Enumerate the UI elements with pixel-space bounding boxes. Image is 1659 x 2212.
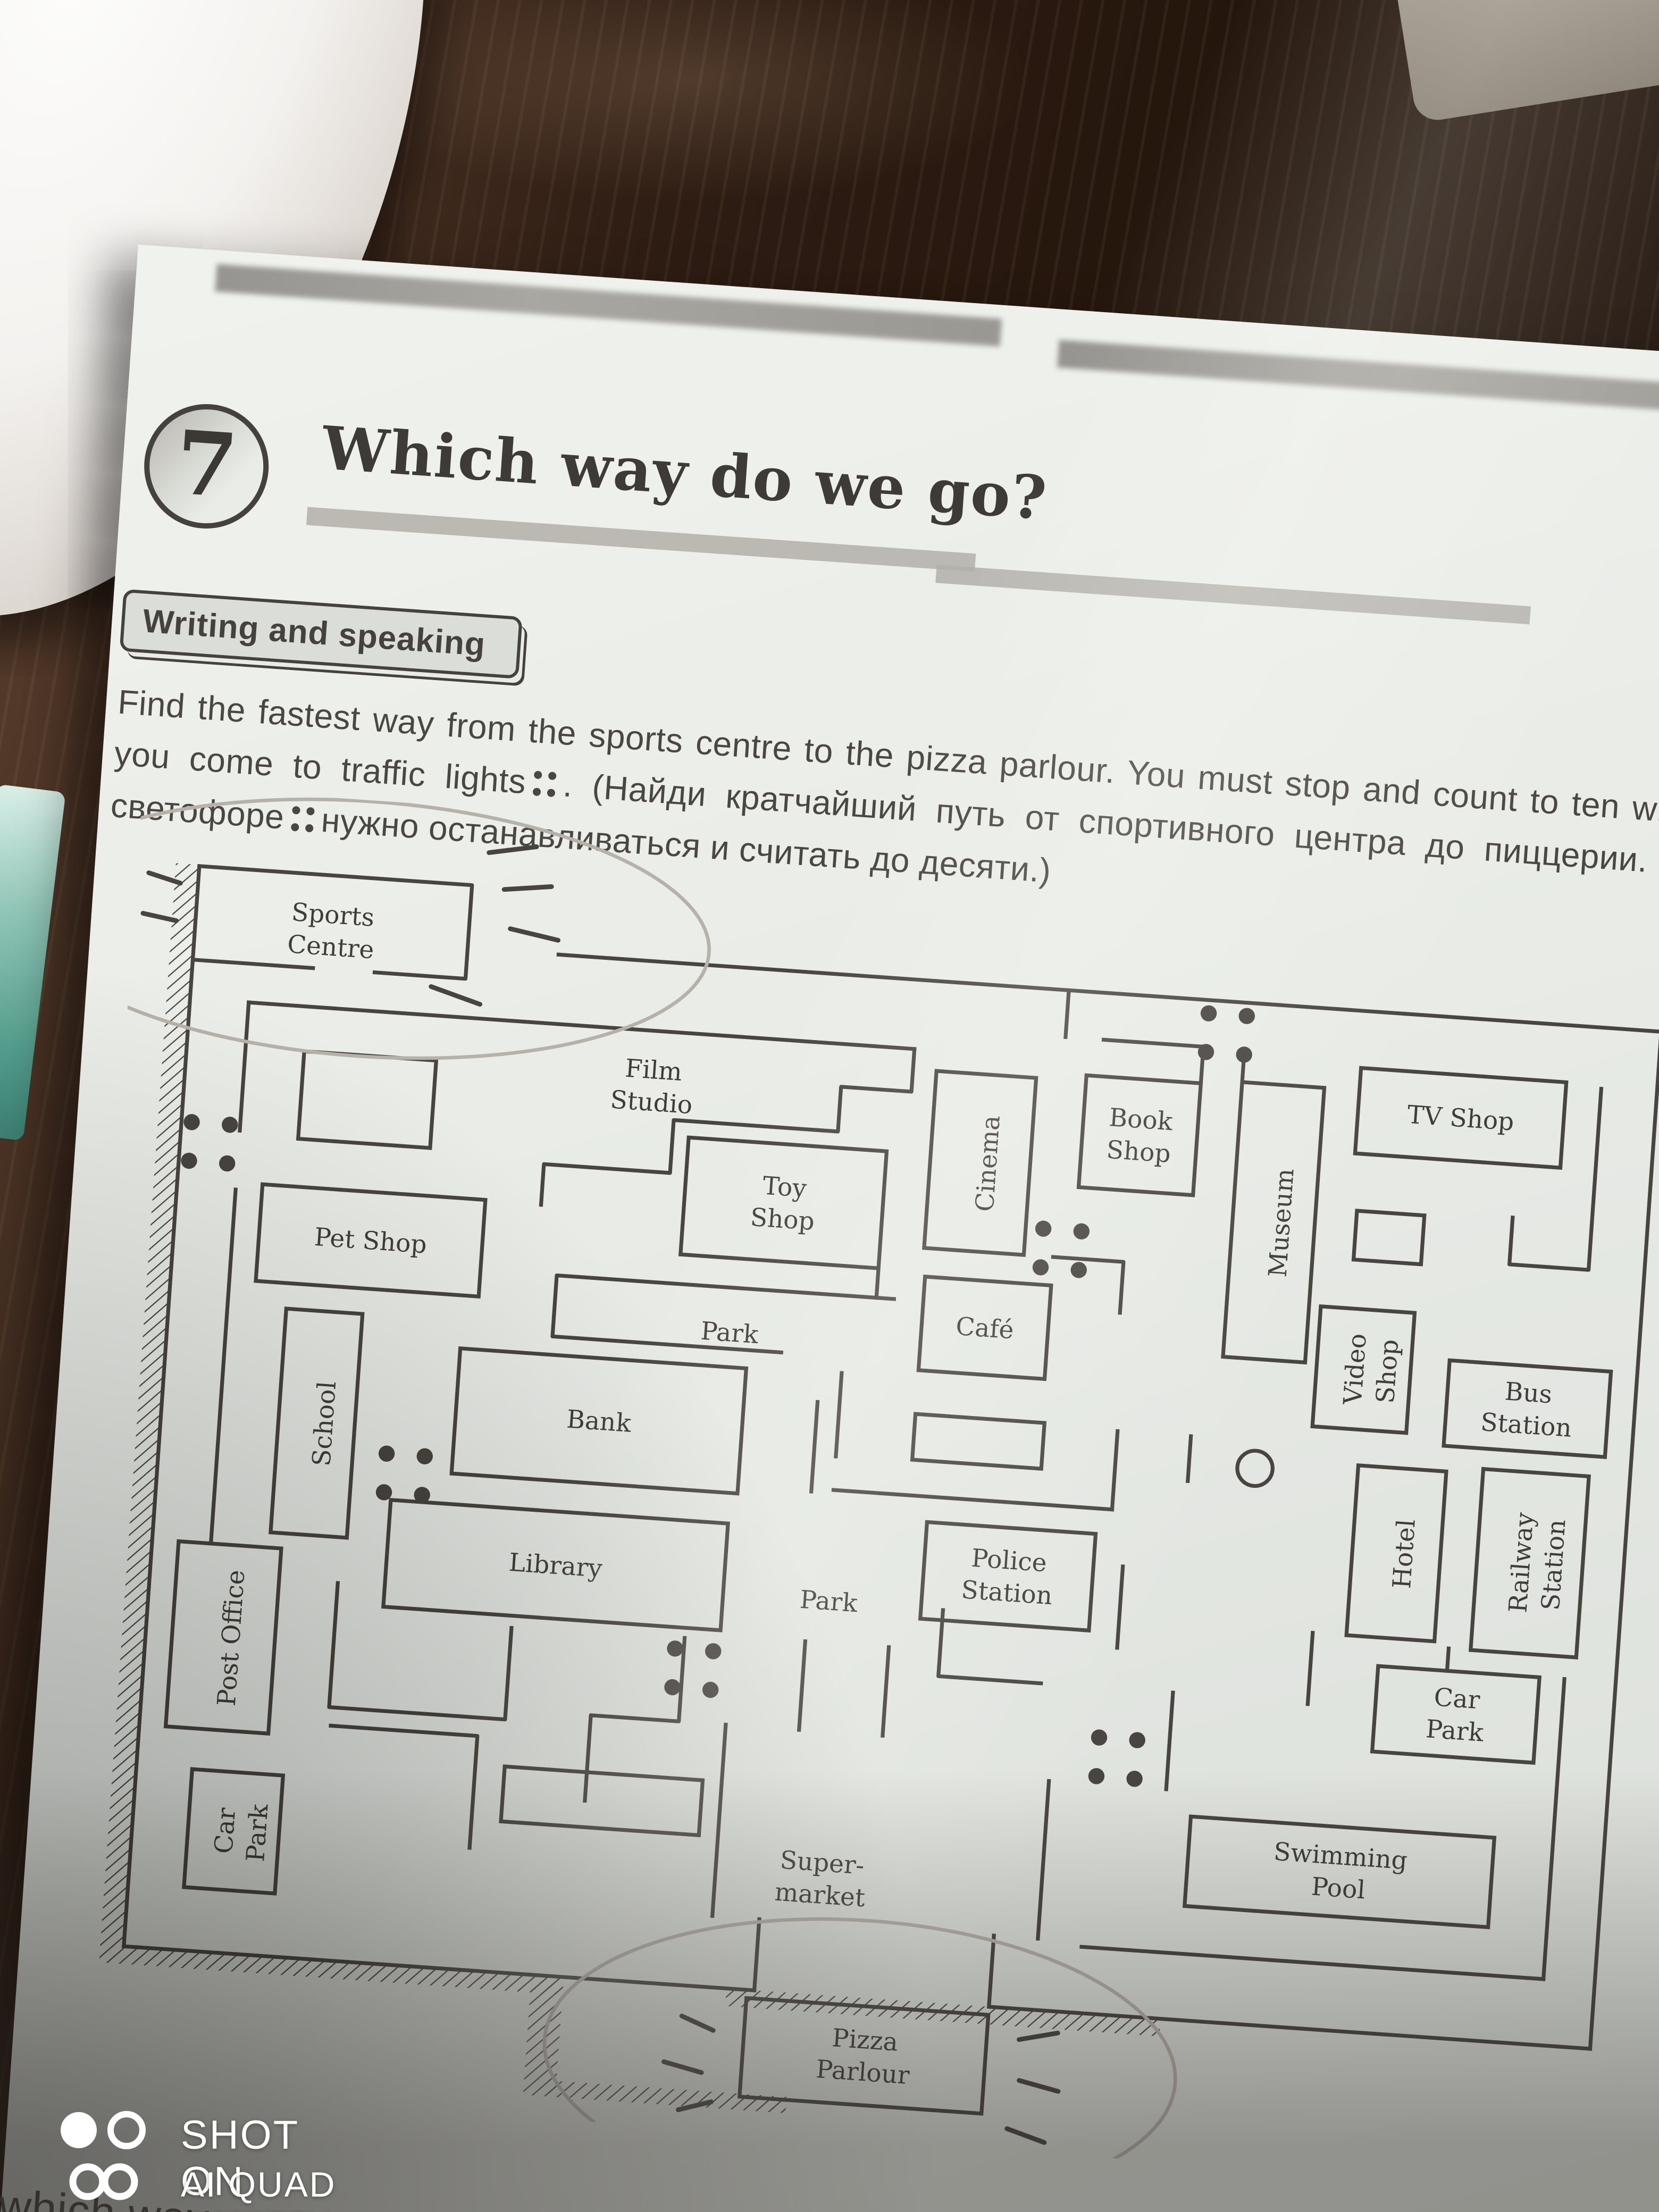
building-label-bus-station: BusStation (1480, 1376, 1575, 1443)
maze-wall (1038, 1781, 1049, 1938)
maze-wall (323, 1725, 477, 1848)
building-label-post-office: Post Office (212, 1569, 251, 1707)
traffic-light-dot (664, 1679, 681, 1696)
building-label-police-station: PoliceStation (960, 1543, 1055, 1611)
area-label-park-upper-text: Park (700, 1317, 760, 1350)
door-dash-mark (663, 2062, 702, 2072)
maze-wall (541, 1024, 915, 1230)
door-dash-mark (1006, 2129, 1045, 2142)
traffic-light-dot (183, 1113, 200, 1130)
building-police-station (920, 1522, 1096, 1630)
building-label-video-shop: VideoShop (1338, 1333, 1405, 1409)
watermark-line2: AI QUAD CAMERA (181, 2164, 340, 2212)
building-label-museum: Museum (1263, 1168, 1300, 1278)
area-label-park-lower-text: Park (799, 1585, 859, 1618)
traffic-light-icon (531, 768, 558, 801)
traffic-light-dot (666, 1640, 683, 1657)
traffic-light-dot (702, 1681, 719, 1698)
traffic-light-dot (1238, 1008, 1255, 1025)
maze-wall (755, 1919, 759, 1990)
building-label-bank-text: Bank (566, 1405, 632, 1438)
building-label-car-park-bottom-left-text: CarPark (208, 1801, 274, 1863)
traffic-light-dot (378, 1445, 395, 1462)
city-maze-svg: ToyShopCinemaBookShopMuseumTV ShopPet Sh… (52, 784, 1659, 2194)
redmi-ai-camera-logo (58, 2110, 165, 2211)
building-label-cafe: Café (955, 1312, 1015, 1345)
maze-wall (193, 960, 313, 968)
building-bus-station (1444, 1360, 1611, 1457)
traffic-light-dot (1088, 1767, 1105, 1784)
maze-wall (329, 1583, 514, 1720)
traffic-light-dot (1032, 1259, 1049, 1276)
building-label-book-shop-text: BookShop (1105, 1103, 1174, 1169)
maze-wall (1066, 990, 1069, 1037)
door-dash-mark (1019, 2081, 1059, 2092)
photo-scene: 7 Which way do we go? Writing and speaki… (0, 0, 1659, 2212)
maze-wall (1544, 1679, 1564, 1979)
building-label-toy-shop: ToyShop (749, 1170, 818, 1236)
roundabout-icon (1236, 1449, 1274, 1487)
traffic-light-dot (1129, 1731, 1146, 1748)
building-label-library: Library (508, 1548, 604, 1583)
building-label-school-text: School (307, 1380, 342, 1467)
maze-wall (1590, 1032, 1659, 2049)
building-swimming-pool (1185, 1816, 1495, 1927)
maze-wall (1308, 1633, 1312, 1704)
building-car-park-right (1372, 1666, 1540, 1763)
area-label-film-studio-text: FilmStudio (609, 1053, 696, 1120)
building-label-museum-text: Museum (1263, 1168, 1300, 1278)
building-label-bank: Bank (566, 1405, 632, 1438)
door-dash-mark (143, 914, 177, 921)
maze-wall (713, 1725, 726, 1916)
maze-wall (834, 1490, 1112, 1510)
door-dash-mark (504, 883, 551, 893)
building-small-square-b (1354, 1211, 1425, 1264)
unit-number-badge: 7 (140, 400, 273, 533)
traffic-light-dot (1235, 1046, 1252, 1063)
door-dash-mark (510, 929, 559, 941)
maze-wall (240, 1002, 249, 1130)
building-label-pizza-parlour-text: PizzaParlour (815, 2022, 913, 2090)
door-dash-mark (430, 986, 481, 1004)
traffic-light-dot (219, 1155, 236, 1172)
traffic-light-dot (1126, 1770, 1143, 1787)
maze-wall (211, 1189, 236, 1541)
building-label-cinema-text: Cinema (970, 1115, 1006, 1213)
maze-wall (1166, 1692, 1173, 1789)
door-dash-mark (1019, 2030, 1058, 2042)
building-label-railway-station-text: RailwayStation (1503, 1511, 1572, 1616)
building-label-tv-shop-text: TV Shop (1406, 1100, 1515, 1137)
maze-wall (1117, 1566, 1123, 1648)
building-label-post-office-text: Post Office (212, 1569, 251, 1707)
building-label-swimming-pool: SwimmingPool (1270, 1837, 1408, 1908)
maze-wall (876, 1268, 878, 1297)
textbook-page: 7 Which way do we go? Writing and speaki… (0, 245, 1659, 2212)
area-label-sports-centre: SportsCentre (287, 898, 378, 965)
maze-wall (799, 1641, 806, 1730)
building-label-car-park-right: CarPark (1425, 1682, 1487, 1748)
door-dash-mark (489, 843, 537, 856)
area-label-park-upper: Park (700, 1317, 760, 1350)
building-label-car-park-bottom-left: CarPark (208, 1801, 274, 1863)
building-label-school: School (307, 1380, 342, 1467)
area-label-supermarket: Super-market (774, 1845, 868, 1913)
building-label-book-shop: BookShop (1105, 1103, 1174, 1169)
traffic-light-dot (221, 1116, 238, 1133)
building-label-library-text: Library (508, 1548, 604, 1583)
building-small-square-a (298, 1051, 437, 1148)
building-label-police-station-text: PoliceStation (960, 1543, 1055, 1611)
building-small-rect-cafe (912, 1414, 1045, 1469)
building-label-pet-shop-text: Pet Shop (313, 1222, 428, 1260)
area-label-supermarket-text: Super-market (774, 1845, 868, 1913)
scan-smudge-band (1057, 340, 1659, 428)
area-label-film-studio: FilmStudio (609, 1053, 696, 1120)
maze-wall (558, 954, 1659, 1032)
building-label-car-park-right-text: CarPark (1425, 1682, 1487, 1748)
traffic-light-dot (1200, 1005, 1217, 1022)
area-label-sports-centre-text: SportsCentre (287, 898, 378, 965)
traffic-light-dot (1073, 1223, 1090, 1240)
maze-wall (811, 1402, 818, 1492)
traffic-light-dot (705, 1643, 722, 1660)
building-label-swimming-pool-text: SwimmingPool (1270, 1837, 1408, 1908)
maze-wall (1510, 1083, 1602, 1270)
building-toy-shop (681, 1137, 887, 1268)
building-label-pet-shop: Pet Shop (313, 1222, 428, 1260)
door-dash-mark (681, 2016, 714, 2030)
maze-wall (883, 1647, 889, 1736)
building-label-railway-station: RailwayStation (1503, 1511, 1572, 1616)
building-label-video-shop-text: VideoShop (1338, 1333, 1405, 1409)
building-label-bus-station-text: BusStation (1480, 1376, 1575, 1443)
maze-wall (1112, 1431, 1117, 1509)
maze-wall (585, 1632, 685, 1807)
building-label-hotel: Hotel (1387, 1518, 1421, 1589)
building-label-cafe-text: Café (955, 1312, 1015, 1345)
traffic-light-dot (180, 1152, 197, 1169)
building-label-pizza-parlour: PizzaParlour (815, 2022, 913, 2090)
city-maze-map: ToyShopCinemaBookShopMuseumTV ShopPet Sh… (52, 784, 1659, 2194)
area-label-park-lower: Park (799, 1585, 859, 1618)
pencil-circle-annotation (52, 784, 718, 1080)
traffic-light-dot (416, 1448, 433, 1465)
traffic-light-dot (1035, 1220, 1052, 1237)
building-label-hotel-text: Hotel (1387, 1518, 1421, 1589)
maze-wall (1082, 1947, 1544, 1979)
maze-wall (1188, 1436, 1191, 1481)
border-hatching (92, 863, 1236, 2139)
maze-wall (836, 1373, 842, 1456)
building-book-shop (1079, 1075, 1201, 1195)
building-label-tv-shop: TV Shop (1406, 1100, 1515, 1137)
section-label-writing-and-speaking: Writing and speaking (120, 589, 523, 679)
maze-wall (1104, 1040, 1204, 1046)
traffic-light-dot (1091, 1729, 1108, 1746)
maze-wall (989, 1935, 994, 2007)
maze-wall (1447, 1648, 1448, 1671)
maze-wall (1050, 1257, 1124, 1313)
building-label-cinema: Cinema (970, 1115, 1006, 1213)
traffic-light-dot (1070, 1261, 1087, 1278)
building-small-rect-bl (501, 1766, 703, 1835)
building-label-toy-shop-text: ToyShop (749, 1170, 818, 1236)
title-underline-bar (935, 565, 1531, 624)
